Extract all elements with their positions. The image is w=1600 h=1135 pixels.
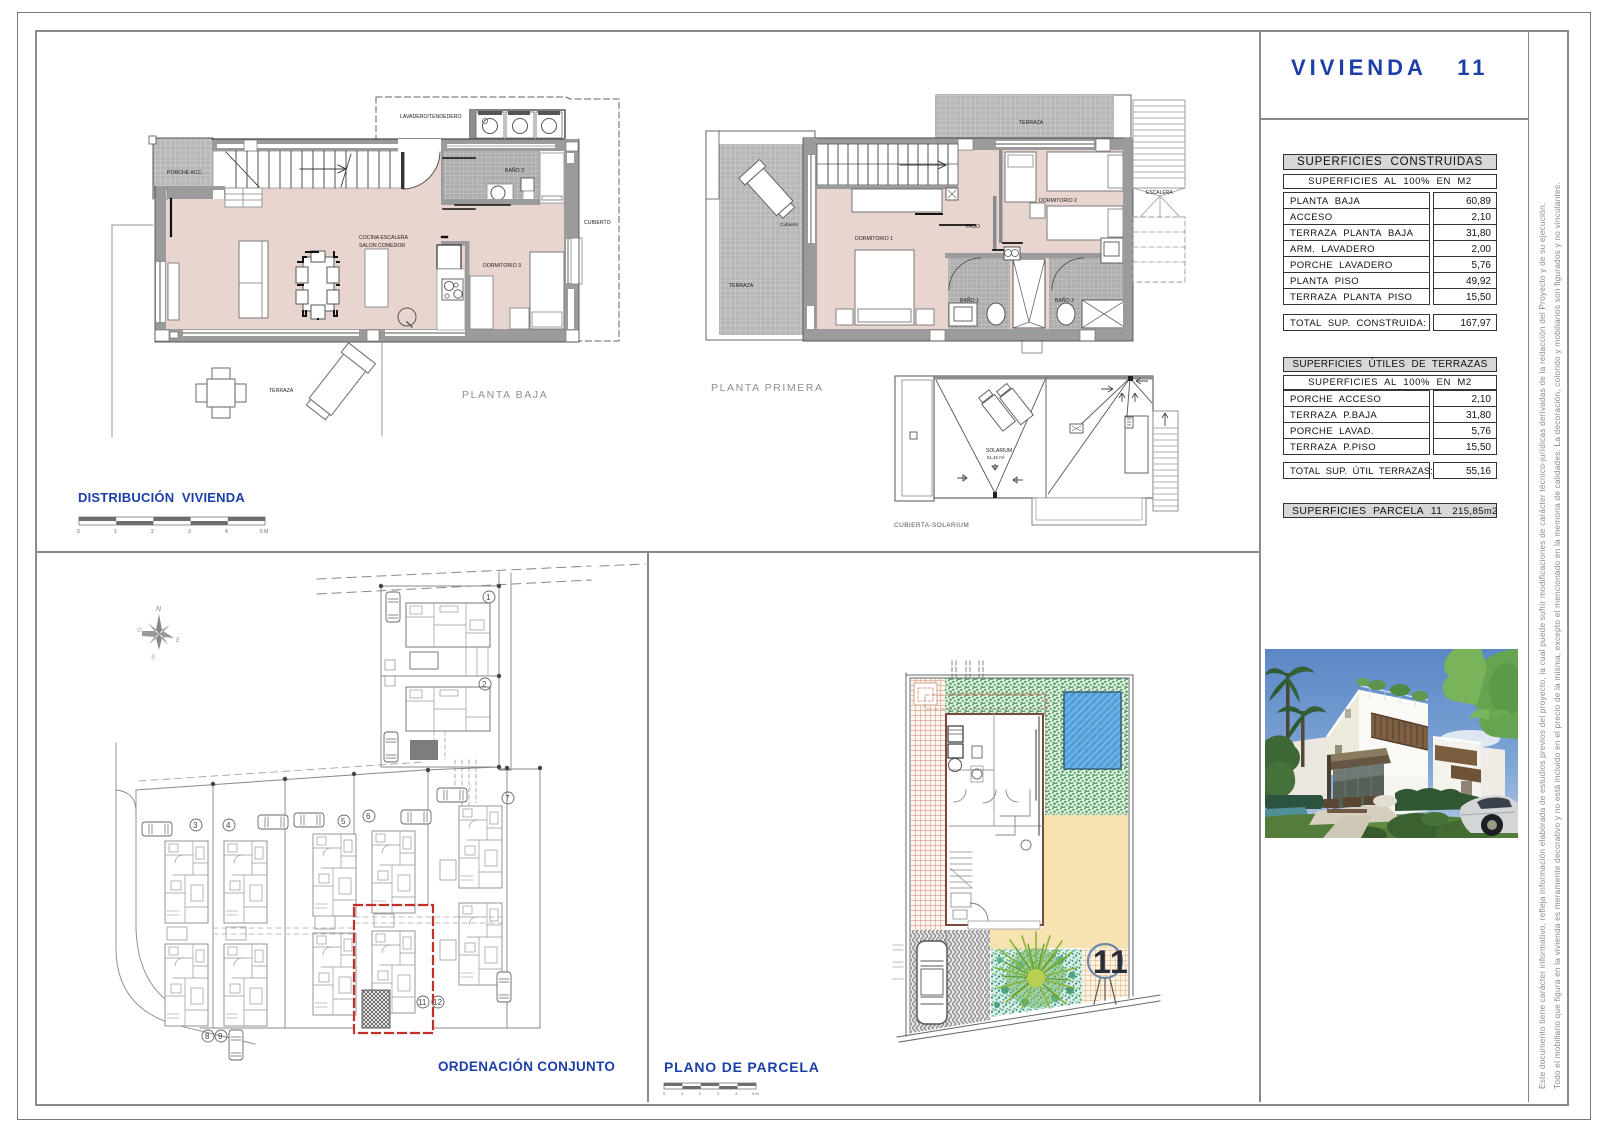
- svg-text:4: 4: [735, 1091, 738, 1096]
- svg-text:1: 1: [681, 1091, 684, 1096]
- svg-text:BAÑO 3: BAÑO 3: [505, 167, 524, 174]
- svg-text:PORCHE ACC.: PORCHE ACC.: [167, 170, 203, 176]
- svg-text:O: O: [137, 628, 142, 634]
- svg-text:E: E: [176, 638, 181, 644]
- svg-text:7: 7: [505, 794, 510, 803]
- svg-text:9: 9: [218, 1032, 223, 1041]
- svg-text:SALON COMEDOR: SALON COMEDOR: [359, 243, 405, 249]
- svg-text:1: 1: [486, 593, 491, 602]
- svg-text:12: 12: [433, 998, 442, 1007]
- svg-text:4: 4: [226, 821, 231, 830]
- svg-text:6: 6: [366, 812, 371, 821]
- svg-text:0: 0: [77, 529, 80, 535]
- svg-text:COCINA ESCALERA: COCINA ESCALERA: [359, 235, 409, 241]
- svg-text:S: S: [151, 655, 155, 661]
- svg-text:4: 4: [225, 529, 228, 535]
- svg-text:Cubierto: Cubierto: [780, 222, 798, 228]
- svg-text:DORMITORIO 1: DORMITORIO 1: [855, 236, 893, 242]
- svg-text:TERRAZA: TERRAZA: [1019, 120, 1044, 126]
- svg-text:3: 3: [193, 821, 198, 830]
- svg-text:SOLARIUM: SOLARIUM: [986, 448, 1012, 454]
- svg-text:3: 3: [188, 529, 191, 535]
- svg-text:CUBIERTA-SOLARIUM: CUBIERTA-SOLARIUM: [894, 522, 969, 529]
- svg-text:51,42 m²: 51,42 m²: [987, 455, 1005, 460]
- svg-text:2: 2: [482, 680, 487, 689]
- svg-text:TERRAZA: TERRAZA: [269, 388, 294, 394]
- svg-text:DORMITORIO 2: DORMITORIO 2: [1039, 198, 1077, 204]
- svg-text:LAVADERO/TENDEDERO: LAVADERO/TENDEDERO: [400, 114, 462, 120]
- svg-text:ESCALERA: ESCALERA: [1146, 190, 1173, 196]
- svg-text:CUBIERTO: CUBIERTO: [584, 220, 611, 226]
- svg-text:5 M: 5 M: [752, 1091, 759, 1096]
- svg-text:2: 2: [151, 529, 154, 535]
- svg-text:1: 1: [114, 529, 117, 535]
- svg-text:11: 11: [1093, 944, 1129, 980]
- svg-text:DORMITORIO 3: DORMITORIO 3: [483, 263, 521, 269]
- svg-text:11: 11: [418, 998, 427, 1007]
- svg-text:5 M: 5 M: [260, 529, 268, 535]
- svg-text:3: 3: [717, 1091, 720, 1096]
- svg-text:N: N: [156, 606, 162, 613]
- svg-text:PLANTA BAJA: PLANTA BAJA: [462, 389, 548, 401]
- svg-text:2: 2: [699, 1091, 702, 1096]
- svg-text:PLANTA PRIMERA: PLANTA PRIMERA: [711, 382, 824, 394]
- svg-text:8: 8: [205, 1032, 210, 1041]
- svg-text:0: 0: [663, 1091, 666, 1096]
- svg-text:5: 5: [341, 817, 346, 826]
- svg-text:TERRAZA: TERRAZA: [729, 283, 754, 289]
